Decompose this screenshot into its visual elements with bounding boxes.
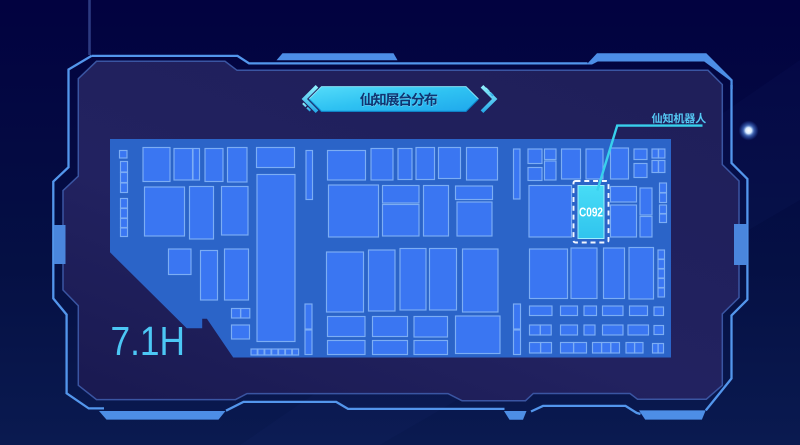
svg-text:C092: C092 (579, 206, 603, 220)
svg-text:7.1H: 7.1H (111, 318, 186, 364)
